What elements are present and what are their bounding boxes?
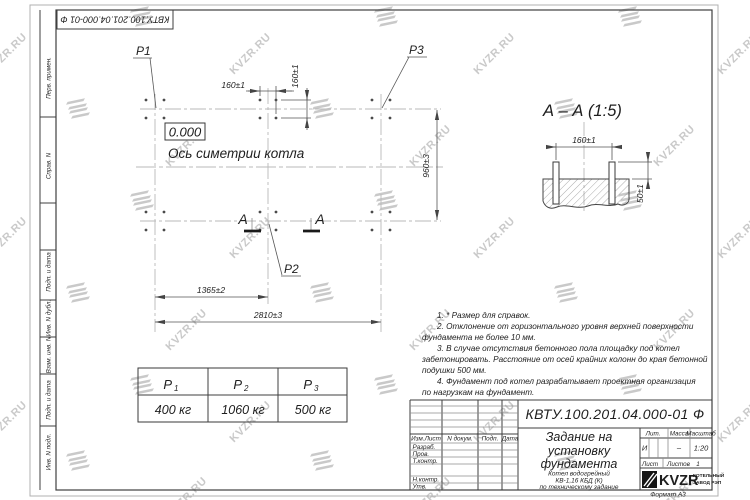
note-line: по нагрузкам на фундамент. [422, 388, 534, 397]
svg-text:1: 1 [174, 384, 178, 393]
section-title: А – А (1:5) [542, 102, 622, 120]
format-label: Формат А3 [650, 492, 686, 499]
table-value-p1: 400 кг [155, 403, 191, 417]
section-letter-right: А [314, 211, 324, 227]
side-label-podp-data-2: Подп. и дата [45, 380, 53, 420]
table-value-p2: 1060 кг [221, 403, 264, 417]
tb-row-prov: Пров. [413, 451, 430, 458]
table-header-p3: P [303, 377, 312, 392]
dim-160-top: 160±1 [221, 80, 294, 114]
note-line: 1. * Размер для справок. [437, 311, 530, 320]
svg-text:3: 3 [314, 384, 319, 393]
tb-row-nkontr: Н.контр. [413, 477, 440, 484]
p2-label: P2 [284, 262, 299, 276]
notes: 1. * Размер для справок. 2. Отклонение о… [421, 311, 708, 397]
plan-view: 0.000 Ось симетрии котла P1 P3 P2 А [133, 43, 443, 332]
svg-text:2: 2 [243, 384, 249, 393]
tb-col-izm-list: Изм.Лист [411, 436, 441, 443]
tb-col-n-dokum: N докум. [447, 435, 472, 443]
tb-row-razrab: Разраб. [413, 443, 436, 451]
drawing-sheet: KVZR.RUKVZR.RUKVZR.RUKVZR.RUKVZR.RUKVZR.… [0, 0, 750, 500]
tb-col-podp: Подп. [482, 435, 499, 443]
lit-value: И [642, 444, 648, 453]
table-header-p1: P [163, 377, 172, 392]
elevation-mark: 0.000 [169, 125, 202, 140]
scale-value: 1:20 [694, 444, 709, 453]
drawing: Перв. примен. Справ. N Подп. и дата Инв.… [0, 0, 750, 500]
drawing-frame: Перв. примен. Справ. N Подп. и дата Инв.… [30, 5, 718, 499]
p3-label: P3 [409, 43, 424, 57]
dim-160-side: 160±1 [281, 64, 311, 130]
doc-title-line1: Задание на [546, 430, 613, 444]
loads-table: P 1 P 2 P 3 400 кг 1060 кг 500 кг [138, 368, 347, 422]
table-value-p3: 500 кг [295, 403, 331, 417]
logo-caption-line2: ЗАВОД РЭП [693, 480, 722, 486]
note-line: 3. В случае отсутствия бетонного пола пл… [437, 344, 680, 353]
note-line: фундамента не более 10 мм. [422, 333, 536, 342]
section-letter-left: А [237, 211, 247, 227]
title-block: КВТУ.100.201.04.000-01 Ф Изм.Лист N доку… [410, 400, 725, 491]
tb-col-data: Дата [501, 436, 519, 443]
anchor-bolt-left [553, 162, 559, 204]
mass-value: – [676, 444, 682, 453]
anchor-bolt-right [609, 162, 615, 204]
dim-1365: 1365±2 [155, 285, 268, 297]
doc-title-line3: фундамента [541, 457, 618, 471]
top-designation-stamp: КВТУ.100.201.04.000-01 Ф [61, 15, 170, 25]
sheet-label: Лист [641, 461, 658, 468]
svg-text:2810±3: 2810±3 [253, 310, 283, 320]
section-view: А – А (1:5) 160±1 50±1 [542, 102, 652, 212]
lit-label: Лит. [645, 431, 661, 438]
product-line1: Котел водогрейный [548, 470, 610, 478]
doc-title-line2: установку [547, 444, 611, 458]
tb-row-utv: Утв. [412, 484, 427, 491]
note-line: 2. Отклонение от горизонтального уровня … [436, 322, 694, 331]
svg-text:160±1: 160±1 [572, 135, 596, 145]
side-label-inv-dubl: Инв. N дубл. [45, 300, 53, 336]
svg-text:1365±2: 1365±2 [197, 285, 226, 295]
dim-960: 960±3 [421, 110, 437, 220]
side-label-sprav-n: Справ. N [46, 152, 53, 179]
product-line3: по техническому задание [539, 483, 618, 491]
symmetry-axis-label: Ось симетрии котла [168, 146, 305, 161]
note-line: подушки 500 мм. [422, 366, 487, 375]
load-point-p1: P1 [133, 44, 156, 108]
sheets-label: Листов [666, 461, 691, 468]
p1-label: P1 [136, 44, 151, 58]
svg-text:960±3: 960±3 [421, 154, 431, 178]
side-label-vzam-inv: Взам. инв. N [46, 336, 53, 373]
tb-row-tkontr: Т.контр. [413, 458, 438, 465]
load-point-p3: P3 [382, 43, 427, 108]
svg-text:160±1: 160±1 [221, 80, 245, 90]
svg-text:50±1: 50±1 [635, 184, 645, 203]
svg-text:160±1: 160±1 [290, 64, 300, 88]
sheets-value: 1 [696, 461, 700, 468]
load-point-p2: P2 [269, 224, 301, 276]
side-label-perv-primen: Перв. примен. [46, 57, 53, 99]
table-header-p2: P [233, 377, 242, 392]
side-label-podp-data-1: Подп. и дата [45, 252, 53, 292]
scale-label: Масштаб [686, 430, 716, 438]
title-block-designation: КВТУ.100.201.04.000-01 Ф [525, 406, 704, 422]
dim-2810: 2810±3 [155, 310, 381, 322]
note-line: 4. Фундамент под котел разрабатывает про… [437, 377, 696, 386]
side-label-inv-podl: Инв. N подл. [45, 434, 53, 471]
note-line: забетонировать. Расстояние от осей крайн… [421, 355, 708, 364]
